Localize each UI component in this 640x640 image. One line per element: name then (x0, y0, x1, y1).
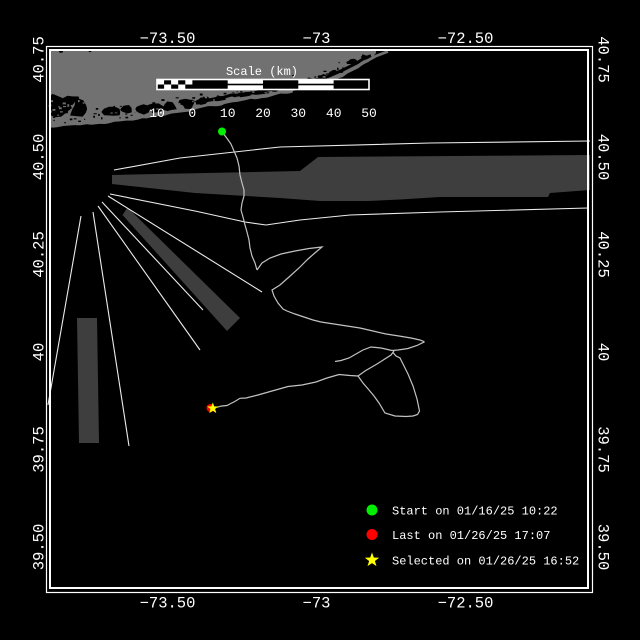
svg-text:Selected on 01/26/25 16:52: Selected on 01/26/25 16:52 (392, 555, 579, 569)
svg-text:−72.50: −72.50 (438, 30, 494, 48)
svg-text:20: 20 (255, 106, 271, 121)
svg-text:−73.50: −73.50 (140, 30, 196, 48)
svg-text:−73.50: −73.50 (140, 595, 196, 613)
svg-text:10: 10 (149, 106, 165, 121)
svg-text:40.25: 40.25 (31, 231, 49, 278)
svg-text:40.50: 40.50 (31, 134, 49, 181)
svg-text:10: 10 (220, 106, 236, 121)
svg-text:−72.50: −72.50 (438, 595, 494, 613)
svg-text:0: 0 (188, 106, 196, 121)
svg-text:40: 40 (31, 343, 49, 362)
svg-text:39.75: 39.75 (31, 426, 49, 473)
svg-text:−73: −73 (303, 595, 331, 613)
svg-text:40.75: 40.75 (594, 36, 612, 83)
svg-text:40: 40 (594, 343, 612, 362)
svg-text:Start on 01/16/25 10:22: Start on 01/16/25 10:22 (392, 505, 558, 519)
svg-text:Scale (km): Scale (km) (226, 65, 298, 79)
svg-text:40.25: 40.25 (594, 231, 612, 278)
svg-text:40: 40 (326, 106, 342, 121)
svg-text:39.50: 39.50 (594, 524, 612, 571)
svg-text:−73: −73 (303, 30, 331, 48)
svg-text:39.50: 39.50 (31, 524, 49, 571)
svg-text:40.50: 40.50 (594, 134, 612, 181)
svg-text:39.75: 39.75 (594, 426, 612, 473)
svg-text:30: 30 (290, 106, 306, 121)
svg-text:40.75: 40.75 (31, 36, 49, 83)
svg-text:50: 50 (361, 106, 377, 121)
svg-text:Last on 01/26/25 17:07: Last on 01/26/25 17:07 (392, 529, 550, 543)
